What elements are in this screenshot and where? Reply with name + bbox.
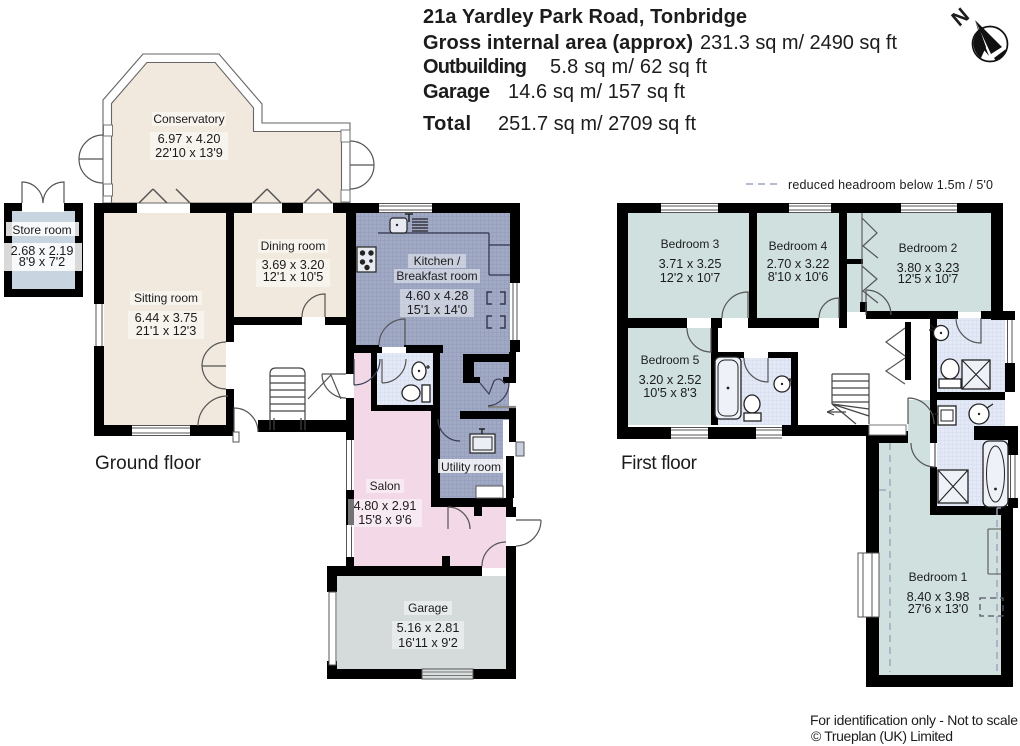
svg-text:reduced headroom below 1.5m /: reduced headroom below 1.5m / 5'0 [788, 178, 993, 192]
svg-text:Outbuilding: Outbuilding [423, 56, 527, 78]
svg-text:3.71 x 3.25: 3.71 x 3.25 [659, 257, 722, 271]
svg-text:First floor: First floor [621, 453, 698, 474]
svg-text:4.80 x 2.91: 4.80 x 2.91 [354, 499, 417, 513]
svg-text:12'1 x 10'5: 12'1 x 10'5 [263, 270, 324, 284]
svg-text:Breakfast room: Breakfast room [396, 269, 477, 283]
svg-text:10'5 x 8'3: 10'5 x 8'3 [643, 386, 697, 400]
svg-text:27'6 x 13'0: 27'6 x 13'0 [908, 602, 969, 616]
svg-text:5.16 x 2.81: 5.16 x 2.81 [397, 621, 460, 635]
svg-text:6.97 x 4.20: 6.97 x 4.20 [158, 132, 221, 146]
svg-text:Kitchen /: Kitchen / [414, 254, 461, 268]
svg-text:Ground floor: Ground floor [95, 453, 202, 474]
svg-text:© Trueplan (UK) Limited: © Trueplan (UK) Limited [811, 728, 953, 744]
svg-text:Salon: Salon [370, 479, 401, 493]
svg-text:3.20 x 2.52: 3.20 x 2.52 [639, 373, 702, 387]
svg-text:5.8 sq m/ 62 sq ft: 5.8 sq m/ 62 sq ft [550, 56, 707, 78]
svg-text:Dining room: Dining room [261, 239, 326, 253]
svg-text:21a Yardley Park Road, Tonbrid: 21a Yardley Park Road, Tonbridge [423, 6, 747, 28]
svg-text:Bedroom 2: Bedroom 2 [899, 241, 958, 255]
svg-text:For identification only - Not: For identification only - Not to scale [810, 712, 1018, 728]
svg-text:Utility room: Utility room [441, 460, 501, 474]
svg-text:16'11 x 9'2: 16'11 x 9'2 [398, 636, 458, 650]
svg-text:Total: Total [423, 113, 471, 135]
svg-text:15'8 x 9'6: 15'8 x 9'6 [358, 513, 412, 527]
svg-text:Gross internal area (approx): Gross internal area (approx) [423, 32, 693, 54]
svg-text:Bedroom 5: Bedroom 5 [641, 353, 700, 367]
svg-text:6.44 x 3.75: 6.44 x 3.75 [135, 311, 198, 325]
svg-text:12'5 x 10'7: 12'5 x 10'7 [898, 272, 959, 286]
svg-text:22'10 x 13'9: 22'10 x 13'9 [155, 146, 223, 160]
svg-text:Sitting room: Sitting room [134, 291, 198, 305]
svg-text:14.6 sq m/ 157 sq ft: 14.6 sq m/ 157 sq ft [508, 81, 685, 103]
svg-text:251.7 sq m/ 2709 sq ft: 251.7 sq m/ 2709 sq ft [498, 113, 696, 135]
svg-text:Store room: Store room [12, 223, 71, 237]
svg-text:8'10 x 10'6: 8'10 x 10'6 [768, 270, 829, 284]
svg-text:15'1 x 14'0: 15'1 x 14'0 [407, 303, 468, 317]
svg-text:Garage: Garage [408, 601, 448, 615]
svg-text:21'1 x 12'3: 21'1 x 12'3 [136, 324, 197, 338]
svg-text:Conservatory: Conservatory [153, 112, 224, 126]
svg-text:4.60 x 4.28: 4.60 x 4.28 [406, 289, 469, 303]
svg-text:Bedroom 3: Bedroom 3 [661, 237, 720, 251]
svg-text:Garage: Garage [423, 81, 490, 103]
svg-text:12'2 x 10'7: 12'2 x 10'7 [660, 271, 721, 285]
svg-text:8'9 x 7'2: 8'9 x 7'2 [19, 255, 65, 269]
svg-text:2.70 x 3.22: 2.70 x 3.22 [767, 257, 830, 271]
svg-text:Bedroom 1: Bedroom 1 [909, 570, 968, 584]
svg-text:231.3 sq m/ 2490 sq ft: 231.3 sq m/ 2490 sq ft [700, 32, 897, 54]
svg-text:Bedroom 4: Bedroom 4 [769, 239, 828, 253]
